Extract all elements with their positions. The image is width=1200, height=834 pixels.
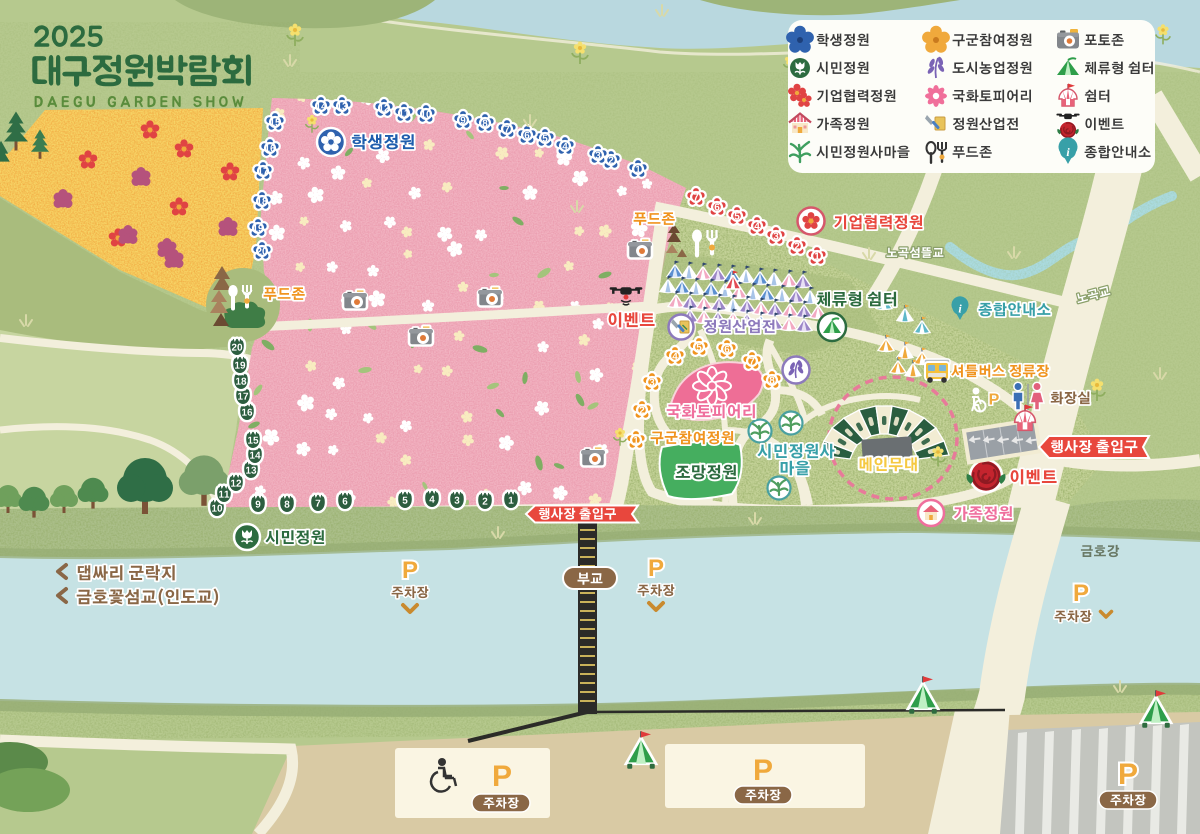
svg-text:P: P — [402, 557, 418, 584]
svg-text:7: 7 — [693, 193, 699, 204]
svg-text:5: 5 — [734, 212, 740, 223]
svg-text:P: P — [492, 760, 512, 793]
svg-text:P: P — [648, 555, 664, 582]
svg-text:1: 1 — [814, 252, 820, 263]
svg-text:3: 3 — [773, 232, 779, 243]
svg-text:6: 6 — [714, 203, 720, 214]
svg-text:4: 4 — [754, 222, 760, 233]
svg-text:P: P — [753, 754, 773, 787]
svg-text:2: 2 — [794, 242, 800, 253]
svg-text:P: P — [1118, 758, 1138, 791]
svg-text:P: P — [1073, 580, 1089, 607]
